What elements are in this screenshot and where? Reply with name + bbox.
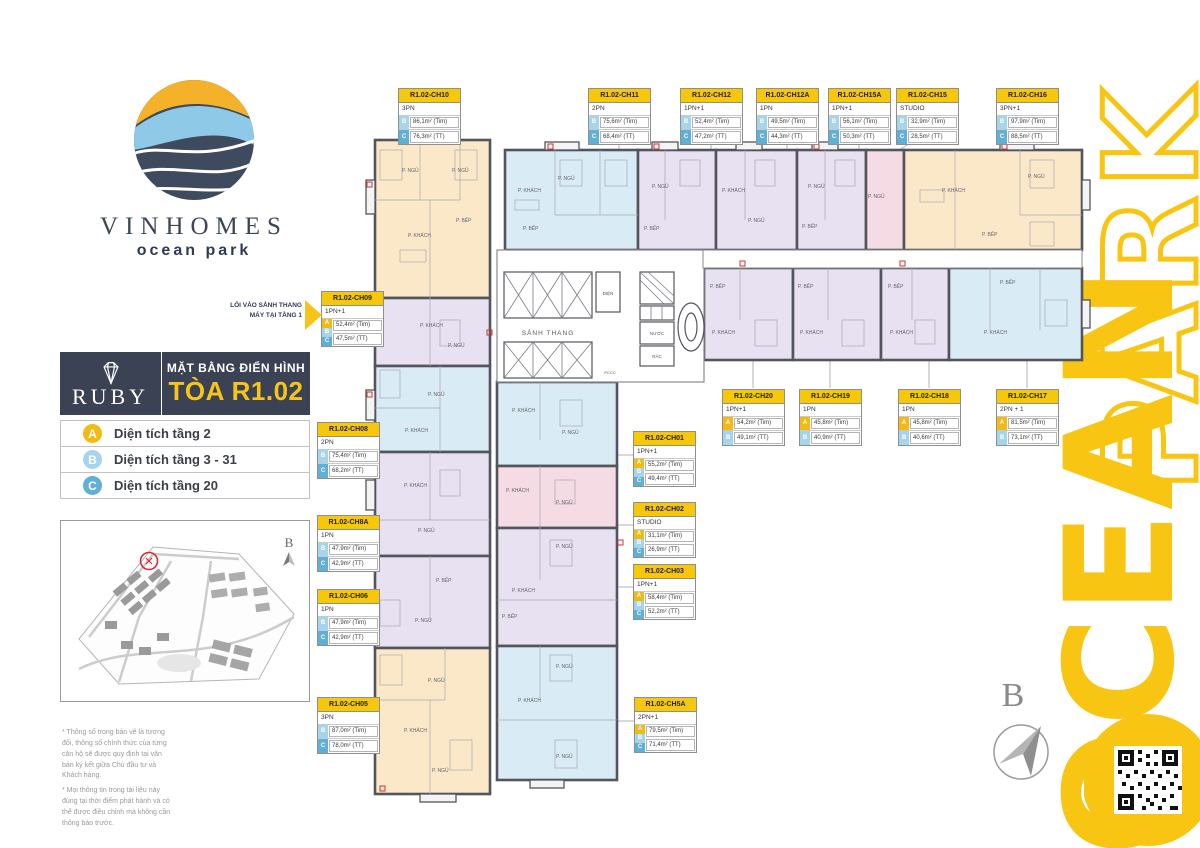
svg-text:P. KHÁCH: P. KHÁCH [408,232,431,239]
svg-text:P. BẾP: P. BẾP [888,283,904,290]
legend-item-b: B Diện tích tầng 3 - 31 [60,446,310,473]
svg-text:P. NGỦ: P. NGỦ [562,429,579,436]
unit-ch15 [866,150,904,250]
unit-ch10 [375,140,490,298]
unit-ch08 [375,366,490,452]
ruby-logo: RUBY [60,352,162,415]
unit-ch01 [497,382,617,466]
svg-text:P. NGỦ: P. NGỦ [748,217,765,224]
svg-text:P. KHÁCH: P. KHÁCH [405,427,428,434]
unit-ch06 [375,556,490,648]
vinhomes-logo-icon [132,78,256,202]
svg-text:P. NGỦ: P. NGỦ [452,167,469,174]
svg-text:P. NGỦ: P. NGỦ [556,753,573,760]
unit-ch17 [949,268,1082,360]
svg-text:P. KHÁCH: P. KHÁCH [800,329,823,336]
page: PARK OCEAN [0,0,1200,848]
unit-ch20 [704,268,793,360]
unit-ch12 [638,150,716,250]
svg-text:P. BẾP: P. BẾP [798,283,814,290]
legend-label-c: Diện tích tầng 20 [114,478,218,493]
unit-ch09 [375,298,490,366]
site-map: B [60,520,310,702]
svg-text:P. NGỦ: P. NGỦ [415,617,432,624]
trash-label: RÁC [652,353,662,359]
svg-text:P. KHÁCH: P. KHÁCH [518,187,541,194]
svg-text:P. BẾP: P. BẾP [644,225,660,232]
svg-text:P. KHÁCH: P. KHÁCH [942,187,965,194]
legend-label-a: Diện tích tầng 2 [114,426,211,441]
svg-text:P. KHÁCH: P. KHÁCH [712,329,735,336]
legend-item-a: A Diện tích tầng 2 [60,420,310,447]
footnote-1: * Thông số trong bản vẽ là tương đối, th… [62,728,174,782]
svg-text:P. NGỦ: P. NGỦ [402,167,419,174]
svg-text:P. KHÁCH: P. KHÁCH [722,187,745,194]
entry-note-line1: LỐI VÀO SẢNH THANG [222,301,302,311]
svg-text:P. KHÁCH: P. KHÁCH [984,329,1007,336]
elevator-bank-upper [504,272,592,318]
footnote: * Thông số trong bản vẽ là tương đối, th… [62,728,174,834]
svg-text:P. KHÁCH: P. KHÁCH [404,727,427,734]
unit-ch02 [497,466,617,528]
compass: B [985,672,1065,792]
svg-text:P. NGỦ: P. NGỦ [1028,173,1045,180]
svg-text:P. NGỦ: P. NGỦ [448,342,465,349]
svg-text:P. BẾP: P. BẾP [436,577,452,584]
map-compass-label: B [285,535,294,550]
plan-title-line1: MẶT BẰNG ĐIỂN HÌNH [167,361,305,375]
svg-text:P. KHÁCH: P. KHÁCH [890,329,913,336]
compass-label: B [1002,677,1025,714]
electric-label: ĐIỆN [603,289,614,296]
diamond-icon [99,360,123,386]
entry-arrow-icon [305,300,322,330]
title-banner: RUBY MẶT BẰNG ĐIỂN HÌNH TÒA R1.02 [60,352,310,415]
logo-subtitle: ocean park [88,242,300,260]
svg-text:P. KHÁCH: P. KHÁCH [404,482,427,489]
svg-text:P. BẾP: P. BẾP [456,217,472,224]
svg-text:P. NGỦ: P. NGỦ [418,527,435,534]
ruby-label: RUBY [72,386,149,408]
svg-text:P. KHÁCH: P. KHÁCH [512,587,535,594]
vinhomes-logo: VINHOMES ocean park [88,78,300,260]
svg-text:P. BẾP: P. BẾP [982,231,998,238]
logo-title: VINHOMES [88,213,300,241]
svg-text:P. NGỦ: P. NGỦ [558,175,575,182]
legend-badge-b: B [83,450,102,469]
fire-label: PCCC [604,370,615,375]
svg-text:P. NGỦ: P. NGỦ [556,543,573,550]
svg-text:P. NGỦ: P. NGỦ [556,663,573,670]
svg-text:P. BẾP: P. BẾP [1000,279,1016,286]
unit-ch15a [797,150,866,250]
svg-text:P. NGỦ: P. NGỦ [432,767,449,774]
svg-text:P. KHÁCH: P. KHÁCH [506,487,529,494]
legend-label-b: Diện tích tầng 3 - 31 [114,452,237,467]
site-map-drawing: B [61,521,309,701]
svg-text:P. NGỦ: P. NGỦ [808,183,825,190]
lobby-entry-note: LỐI VÀO SẢNH THANG MÁY TẠI TẦNG 1 [222,301,302,321]
plan-title-line2: TÒA R1.02 [168,376,303,407]
svg-text:P. NGỦ: P. NGỦ [428,391,445,398]
svg-text:P. BẾP: P. BẾP [502,613,518,620]
footnote-2: * Mọi thông tin trong tài liệu này đúng … [62,786,174,829]
svg-text:P. KHÁCH: P. KHÁCH [512,407,535,414]
legend-badge-c: C [83,476,102,495]
unit-ch8a [375,452,490,556]
lobby-label: SẢNH THANG [522,328,575,337]
entry-note-line2: MÁY TẠI TẦNG 1 [222,311,302,321]
svg-text:P. NGỦ: P. NGỦ [868,193,885,200]
water-label: NƯỚC [650,330,665,336]
unit-ch18 [881,268,949,360]
svg-text:P. NGỦ: P. NGỦ [652,183,669,190]
legend-item-c: C Diện tích tầng 20 [60,472,310,499]
svg-text:P. BẾP: P. BẾP [802,223,818,230]
svg-text:P. NGỦ: P. NGỦ [428,677,445,684]
svg-text:P. NGỦ: P. NGỦ [556,499,573,506]
plan-title: MẶT BẰNG ĐIỂN HÌNH TÒA R1.02 [162,352,310,415]
map-compass-icon [283,552,289,566]
svg-text:P. KHÁCH: P. KHÁCH [420,322,443,329]
unit-ch19 [793,268,881,360]
apartment-units [375,140,1082,794]
svg-text:P. BẾP: P. BẾP [523,225,539,232]
qr-disc [1084,710,1200,848]
legend-badge-a: A [83,424,102,443]
svg-text:P. KHÁCH: P. KHÁCH [518,697,541,704]
unit-ch12a [716,150,797,250]
svg-text:P. BẾP: P. BẾP [710,283,726,290]
